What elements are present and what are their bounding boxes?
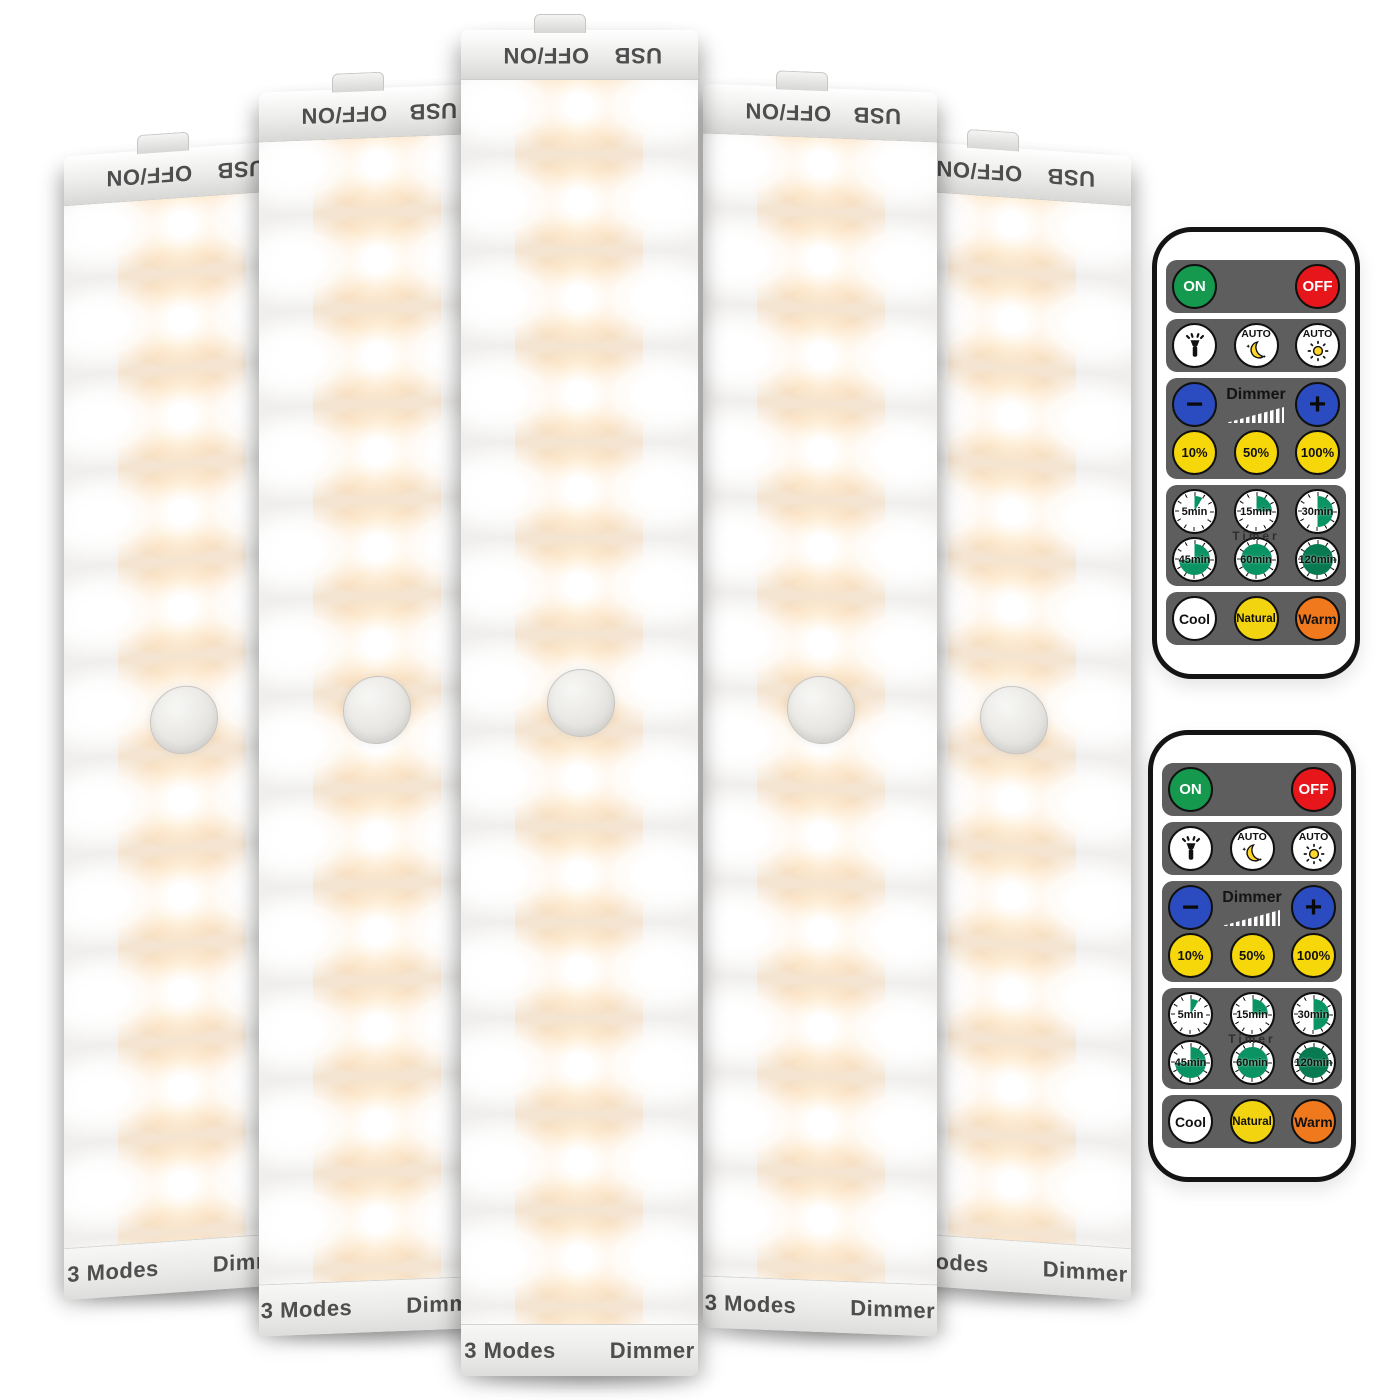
timer-120min-button[interactable]: 120min [1295,537,1340,582]
led-panel [703,134,937,1285]
mode-group: AUTO AUTO [1166,319,1346,372]
timer-60min-button[interactable]: 60min [1234,537,1279,582]
timer-120min-label: 120min [1299,554,1337,566]
dimmer-minus-button[interactable]: − [1172,382,1217,427]
timer-5min-button[interactable]: 5min [1168,992,1213,1037]
dimmer-label: Dimmer [850,1295,935,1324]
modes-label: 3 Modes [705,1289,797,1319]
timer-45min-label: 45min [1175,1057,1207,1069]
motion-sensor-dome [150,684,218,757]
usb-label: USB [614,42,662,68]
moon-stars-icon [1243,340,1269,362]
dimmer-label: Dimmer [1043,1256,1128,1288]
remote-button-groups: ON OFF AUTO [1162,763,1342,1148]
timer-group: Timer 5min 15min 30min [1166,485,1346,586]
usb-label: USB [853,101,901,129]
timer-30min-label: 30min [1298,1009,1330,1021]
timer-45min-button[interactable]: 45min [1168,1040,1213,1085]
warm-button[interactable]: Warm [1295,596,1340,641]
timer-45min-button[interactable]: 45min [1172,537,1217,582]
dimmer-brightness-group: − Dimmer + 10% 50% 100% [1166,378,1346,479]
brightness-50-button[interactable]: 50% [1234,430,1279,475]
auto-label: AUTO [1241,329,1271,340]
timer-60min-label: 60min [1240,554,1272,566]
auto-night-mode-button[interactable]: AUTO [1234,323,1279,368]
on-button[interactable]: ON [1168,767,1213,812]
mode-group: AUTO AUTO [1162,822,1342,875]
off-button[interactable]: OFF [1291,767,1336,812]
flashlight-mode-button[interactable] [1168,826,1213,871]
timer-15min-button[interactable]: 15min [1230,992,1275,1037]
bar-bottom-cap: 3 Modes Dimmer [703,1276,937,1337]
timer-5min-label: 5min [1182,506,1208,518]
timer-group: Timer 5min 15min 30min [1162,988,1342,1089]
auto-night-mode-button[interactable]: AUTO [1230,826,1275,871]
auto-label: AUTO [1237,832,1267,843]
timer-group-label: Timer [1232,529,1279,543]
led-light-bar: OFF/ON USB 3 Modes Dimmer [259,84,493,1337]
brightness-10-button[interactable]: 10% [1172,430,1217,475]
timer-30min-label: 30min [1302,506,1334,518]
modes-label: 3 Modes [464,1338,556,1364]
remote-control: ON OFF AUTO [1148,730,1356,1182]
power-switch-tab[interactable] [332,72,384,93]
power-switch-tab[interactable] [967,129,1019,152]
timer-60min-label: 60min [1236,1057,1268,1069]
timer-30min-button[interactable]: 30min [1295,489,1340,534]
led-panel [259,134,493,1285]
warm-button[interactable]: Warm [1291,1099,1336,1144]
sun-icon [1305,340,1331,362]
auto-label: AUTO [1303,329,1333,340]
bar-top-cap: OFF/ON USB [461,30,698,80]
usb-label: USB [1047,162,1095,191]
offon-label: OFF/ON [106,159,192,191]
dimmer-plus-button[interactable]: + [1295,382,1340,427]
offon-label: OFF/ON [503,42,589,68]
timer-15min-label: 15min [1236,1009,1268,1021]
moon-stars-icon [1239,843,1265,865]
offon-label: OFF/ON [745,97,831,126]
modes-label: 3 Modes [67,1255,159,1287]
timer-5min-label: 5min [1178,1009,1204,1021]
ramp-icon [1228,407,1284,423]
bar-bottom-cap: 3 Modes Dimmer [461,1324,698,1376]
bar-top-cap: OFF/ON USB [703,84,937,143]
timer-30min-button[interactable]: 30min [1291,992,1336,1037]
motion-sensor-dome [787,675,855,746]
remote-button-groups: ON OFF AUTO [1166,260,1346,645]
dimmer-text: Dimmer [1226,386,1286,404]
flashlight-mode-button[interactable] [1172,323,1217,368]
dimmer-brightness-group: − Dimmer + 10% 50% 100% [1162,881,1342,982]
power-switch-tab[interactable] [776,70,828,91]
auto-day-mode-button[interactable]: AUTO [1295,323,1340,368]
dimmer-minus-button[interactable]: − [1168,885,1213,930]
brightness-50-button[interactable]: 50% [1230,933,1275,978]
power-switch-tab[interactable] [534,14,586,33]
auto-day-mode-button[interactable]: AUTO [1291,826,1336,871]
dimmer-plus-button[interactable]: + [1291,885,1336,930]
motion-sensor-dome [980,684,1048,757]
timer-60min-button[interactable]: 60min [1230,1040,1275,1085]
bar-bottom-cap: 3 Modes Dimmer [259,1276,493,1337]
color-temp-group: Cool Natural Warm [1166,592,1346,645]
timer-group-label: Timer [1228,1032,1275,1046]
dimmer-label: Dimmer [610,1338,695,1364]
natural-button[interactable]: Natural [1230,1099,1275,1144]
ramp-icon [1224,910,1280,926]
usb-label: USB [217,154,265,183]
brightness-100-button[interactable]: 100% [1291,933,1336,978]
offon-label: OFF/ON [301,99,387,128]
remote-control: ON OFF AUTO [1152,227,1360,679]
timer-15min-button[interactable]: 15min [1234,489,1279,534]
flashlight-icon [1176,834,1206,864]
auto-label: AUTO [1299,832,1329,843]
timer-15min-label: 15min [1240,506,1272,518]
offon-label: OFF/ON [936,154,1022,186]
natural-button[interactable]: Natural [1234,596,1279,641]
timer-45min-label: 45min [1179,554,1211,566]
flashlight-icon [1180,331,1210,361]
on-button[interactable]: ON [1172,264,1217,309]
power-group: ON OFF [1166,260,1346,313]
product-photo: OFF/ON USB 3 Modes Dimmer OFF/ON USB 3 M… [0,0,1400,1400]
timer-120min-label: 120min [1295,1057,1333,1069]
power-switch-tab[interactable] [137,132,189,155]
dimmer-indicator: Dimmer [1221,889,1283,926]
motion-sensor-dome [547,669,615,737]
led-light-bar: OFF/ON USB 3 Modes Dimmer [703,84,937,1337]
cool-button[interactable]: Cool [1168,1099,1213,1144]
cool-button[interactable]: Cool [1172,596,1217,641]
off-button[interactable]: OFF [1295,264,1340,309]
timer-5min-button[interactable]: 5min [1172,489,1217,534]
power-group: ON OFF [1162,763,1342,816]
usb-label: USB [409,96,457,124]
timer-120min-button[interactable]: 120min [1291,1040,1336,1085]
bar-top-cap: OFF/ON USB [259,84,493,143]
led-panel [461,80,698,1324]
led-light-bar: OFF/ON USB 3 Modes Dimmer [461,30,698,1376]
color-temp-group: Cool Natural Warm [1162,1095,1342,1148]
dimmer-text: Dimmer [1222,889,1282,907]
sun-icon [1301,843,1327,865]
dimmer-indicator: Dimmer [1225,386,1287,423]
brightness-100-button[interactable]: 100% [1295,430,1340,475]
modes-label: 3 Modes [261,1294,353,1324]
motion-sensor-dome [343,675,411,746]
brightness-10-button[interactable]: 10% [1168,933,1213,978]
